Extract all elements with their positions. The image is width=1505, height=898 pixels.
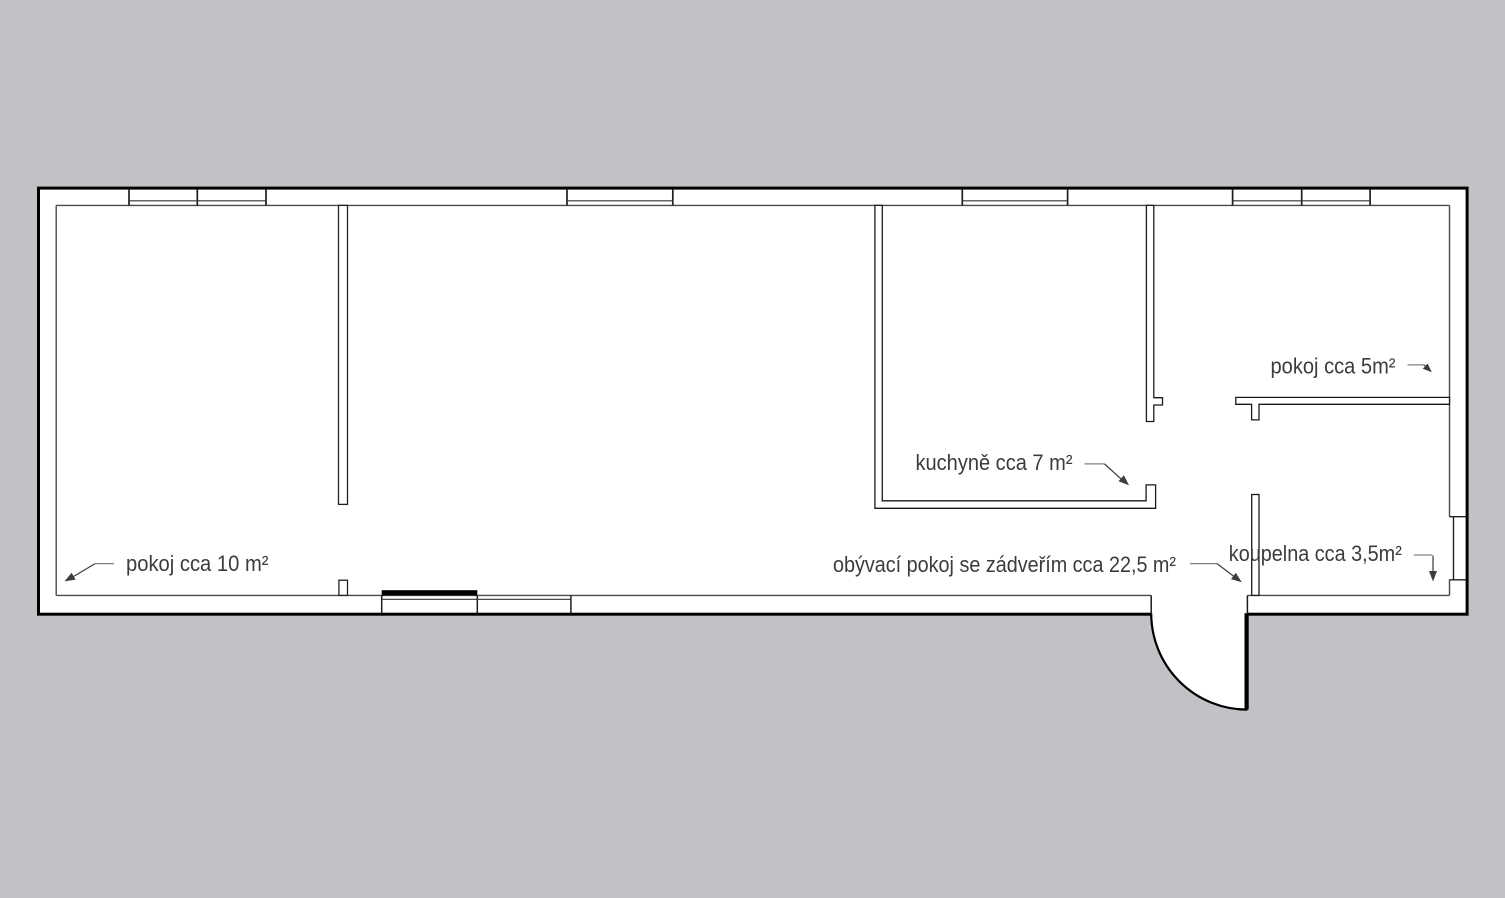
svg-text:kuchyně cca 7 m²: kuchyně cca 7 m² bbox=[916, 450, 1073, 475]
svg-text:pokoj cca 5m²: pokoj cca 5m² bbox=[1271, 354, 1396, 379]
svg-text:pokoj cca 10 m²: pokoj cca 10 m² bbox=[126, 551, 269, 576]
svg-text:koupelna cca 3,5m²: koupelna cca 3,5m² bbox=[1229, 541, 1402, 566]
svg-text:obývací pokoj se zádveřím cca: obývací pokoj se zádveřím cca 22,5 m² bbox=[833, 552, 1176, 577]
